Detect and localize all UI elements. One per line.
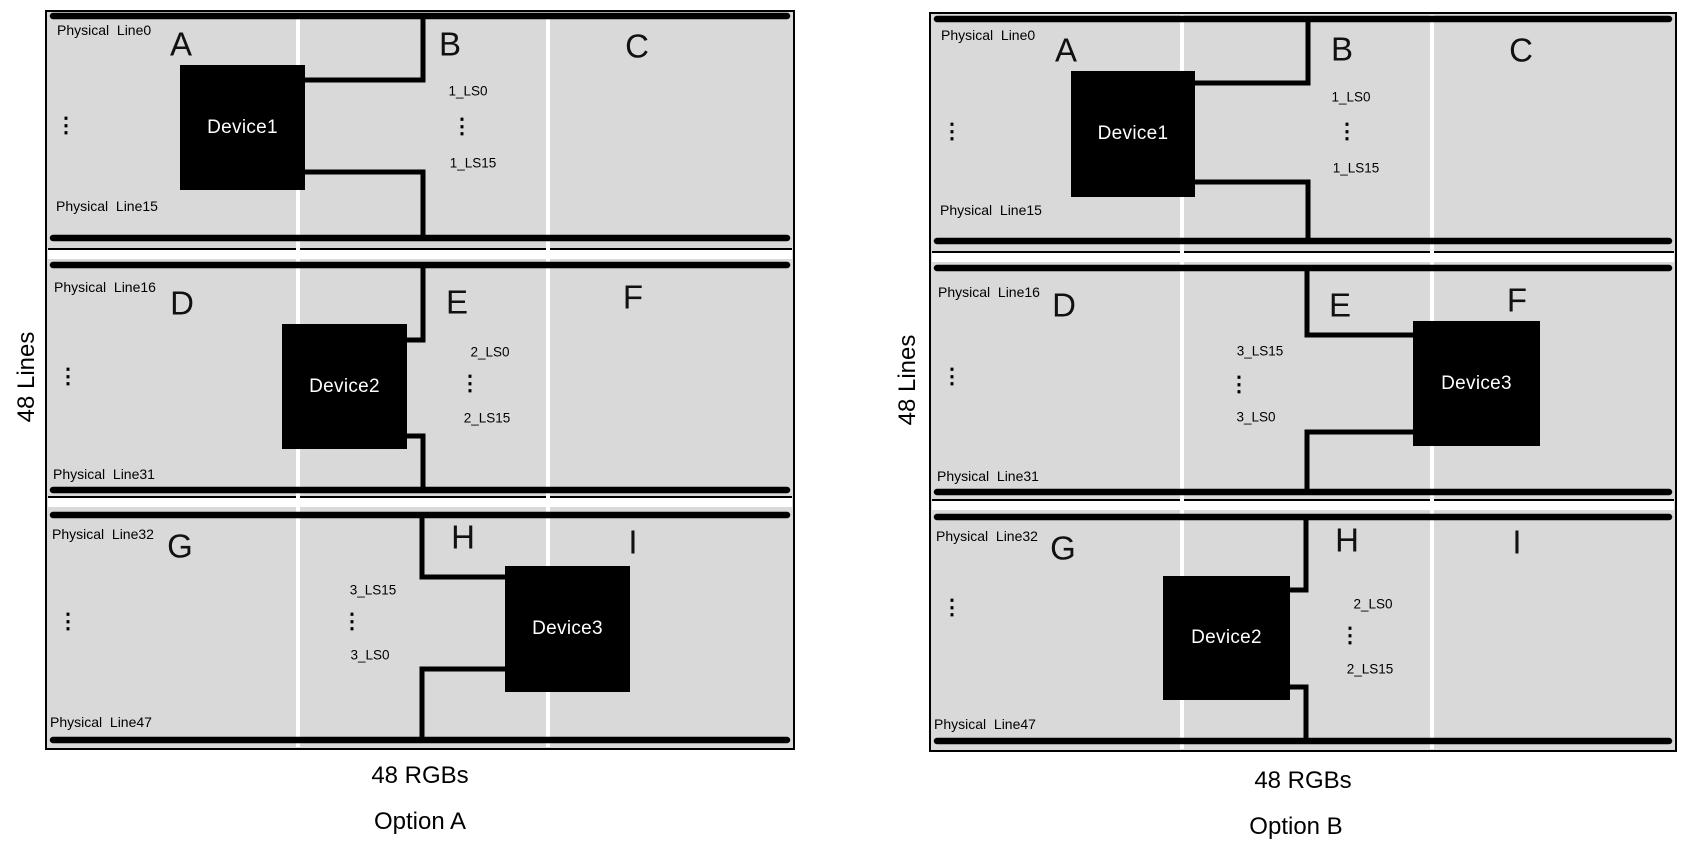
y-axis-label-option-b: 48 Lines — [894, 335, 922, 426]
region-a-label-option-b: A — [1055, 34, 1077, 67]
caption-option-b: Option B — [1249, 813, 1342, 841]
table-panel-option-b — [929, 12, 1677, 752]
physical-line31-label-option-b: Physical Line31 — [937, 468, 1039, 484]
physical-line15-label-option-b: Physical Line15 — [940, 202, 1042, 218]
ellipsis-mark-0-option-a: ⋮ — [56, 116, 77, 136]
region-h-label-option-b: H — [1335, 524, 1359, 557]
region-i-label-option-a: I — [628, 526, 637, 559]
region-a-label-option-a: A — [170, 28, 192, 61]
region-e-label-option-a: E — [446, 286, 468, 319]
ls-label-3_ls0-option-a: 3_LS0 — [350, 648, 389, 663]
ellipsis-mark-4-option-b: ⋮ — [942, 598, 963, 618]
ls-label-3_ls15-option-a: 3_LS15 — [350, 583, 397, 598]
physical-line0-label-option-a: Physical Line0 — [57, 22, 151, 38]
device2-box-option-b: Device2 — [1163, 576, 1290, 700]
ls-label-3_ls15-option-b: 3_LS15 — [1237, 344, 1284, 359]
y-axis-label-option-a: 48 Lines — [13, 332, 41, 423]
physical-line15-label-option-a: Physical Line15 — [56, 198, 158, 214]
region-f-label-option-a: F — [623, 281, 643, 314]
region-g-label-option-a: G — [167, 530, 193, 563]
device3-box-option-b: Device3 — [1413, 321, 1540, 446]
region-i-label-option-b: I — [1512, 526, 1521, 559]
ls-label-2_ls15-option-a: 2_LS15 — [464, 411, 511, 426]
band-gap-strip-1-option-b — [932, 501, 1674, 510]
physical-line16-label-option-b: Physical Line16 — [938, 284, 1040, 300]
device2-label: Device2 — [1191, 627, 1262, 649]
dual-option-wiring-diagram: 48 Lines 48 RGBs Option A 48 Lines 48 RG… — [0, 0, 1682, 858]
ellipsis-mark-2-option-a: ⋮ — [58, 367, 79, 387]
physical-line32-label-option-a: Physical Line32 — [52, 526, 154, 542]
device3-label: Device3 — [532, 618, 603, 640]
ellipsis-mark-4-option-a: ⋮ — [58, 612, 79, 632]
region-c-label-option-a: C — [625, 30, 649, 63]
caption-option-a: Option A — [374, 808, 466, 836]
physical-line16-label-option-a: Physical Line16 — [54, 279, 156, 295]
ellipsis-mark-3-option-b: ⋮ — [1229, 375, 1250, 395]
region-g-label-option-b: G — [1050, 532, 1076, 565]
physical-line47-label-option-b: Physical Line47 — [934, 716, 1036, 732]
device1-label: Device1 — [1098, 123, 1169, 145]
device1-box-option-a: Device1 — [180, 65, 305, 190]
region-c-label-option-b: C — [1509, 34, 1533, 67]
ellipsis-mark-1-option-b: ⋮ — [1337, 122, 1358, 142]
device3-label: Device3 — [1441, 373, 1512, 395]
region-b-label-option-a: B — [439, 28, 461, 61]
region-e-label-option-b: E — [1329, 289, 1351, 322]
x-axis-label-option-a: 48 RGBs — [371, 762, 468, 790]
ls-label-1_ls15-option-a: 1_LS15 — [450, 156, 497, 171]
ls-label-2_ls15-option-b: 2_LS15 — [1347, 662, 1394, 677]
ellipsis-mark-5-option-a: ⋮ — [342, 612, 363, 632]
ls-label-1_ls0-option-a: 1_LS0 — [448, 84, 487, 99]
physical-line0-label-option-b: Physical Line0 — [941, 27, 1035, 43]
ellipsis-mark-1-option-a: ⋮ — [452, 117, 473, 137]
ls-label-1_ls15-option-b: 1_LS15 — [1333, 161, 1380, 176]
ellipsis-mark-5-option-b: ⋮ — [1340, 626, 1361, 646]
ls-label-2_ls0-option-b: 2_LS0 — [1353, 597, 1392, 612]
device1-label: Device1 — [207, 117, 278, 139]
region-f-label-option-b: F — [1507, 284, 1527, 317]
ls-label-3_ls0-option-b: 3_LS0 — [1236, 410, 1275, 425]
band-gap-strip-1-option-a — [48, 498, 792, 507]
region-d-label-option-a: D — [170, 287, 194, 320]
device3-box-option-a: Device3 — [505, 566, 630, 692]
ls-label-2_ls0-option-a: 2_LS0 — [470, 345, 509, 360]
ellipsis-mark-0-option-b: ⋮ — [942, 122, 963, 142]
band-gap-strip-0-option-b — [932, 253, 1674, 262]
region-d-label-option-b: D — [1052, 289, 1076, 322]
region-b-label-option-b: B — [1331, 33, 1353, 66]
physical-line32-label-option-b: Physical Line32 — [936, 528, 1038, 544]
physical-line47-label-option-a: Physical Line47 — [50, 714, 152, 730]
region-h-label-option-a: H — [451, 521, 475, 554]
ellipsis-mark-2-option-b: ⋮ — [942, 367, 963, 387]
ls-label-1_ls0-option-b: 1_LS0 — [1331, 90, 1370, 105]
x-axis-label-option-b: 48 RGBs — [1254, 767, 1351, 795]
device2-label: Device2 — [309, 376, 380, 398]
ellipsis-mark-3-option-a: ⋮ — [460, 374, 481, 394]
table-panel-option-a — [45, 10, 795, 750]
physical-line31-label-option-a: Physical Line31 — [53, 466, 155, 482]
device1-box-option-b: Device1 — [1071, 71, 1195, 197]
band-gap-strip-0-option-a — [48, 250, 792, 259]
device2-box-option-a: Device2 — [282, 324, 407, 449]
